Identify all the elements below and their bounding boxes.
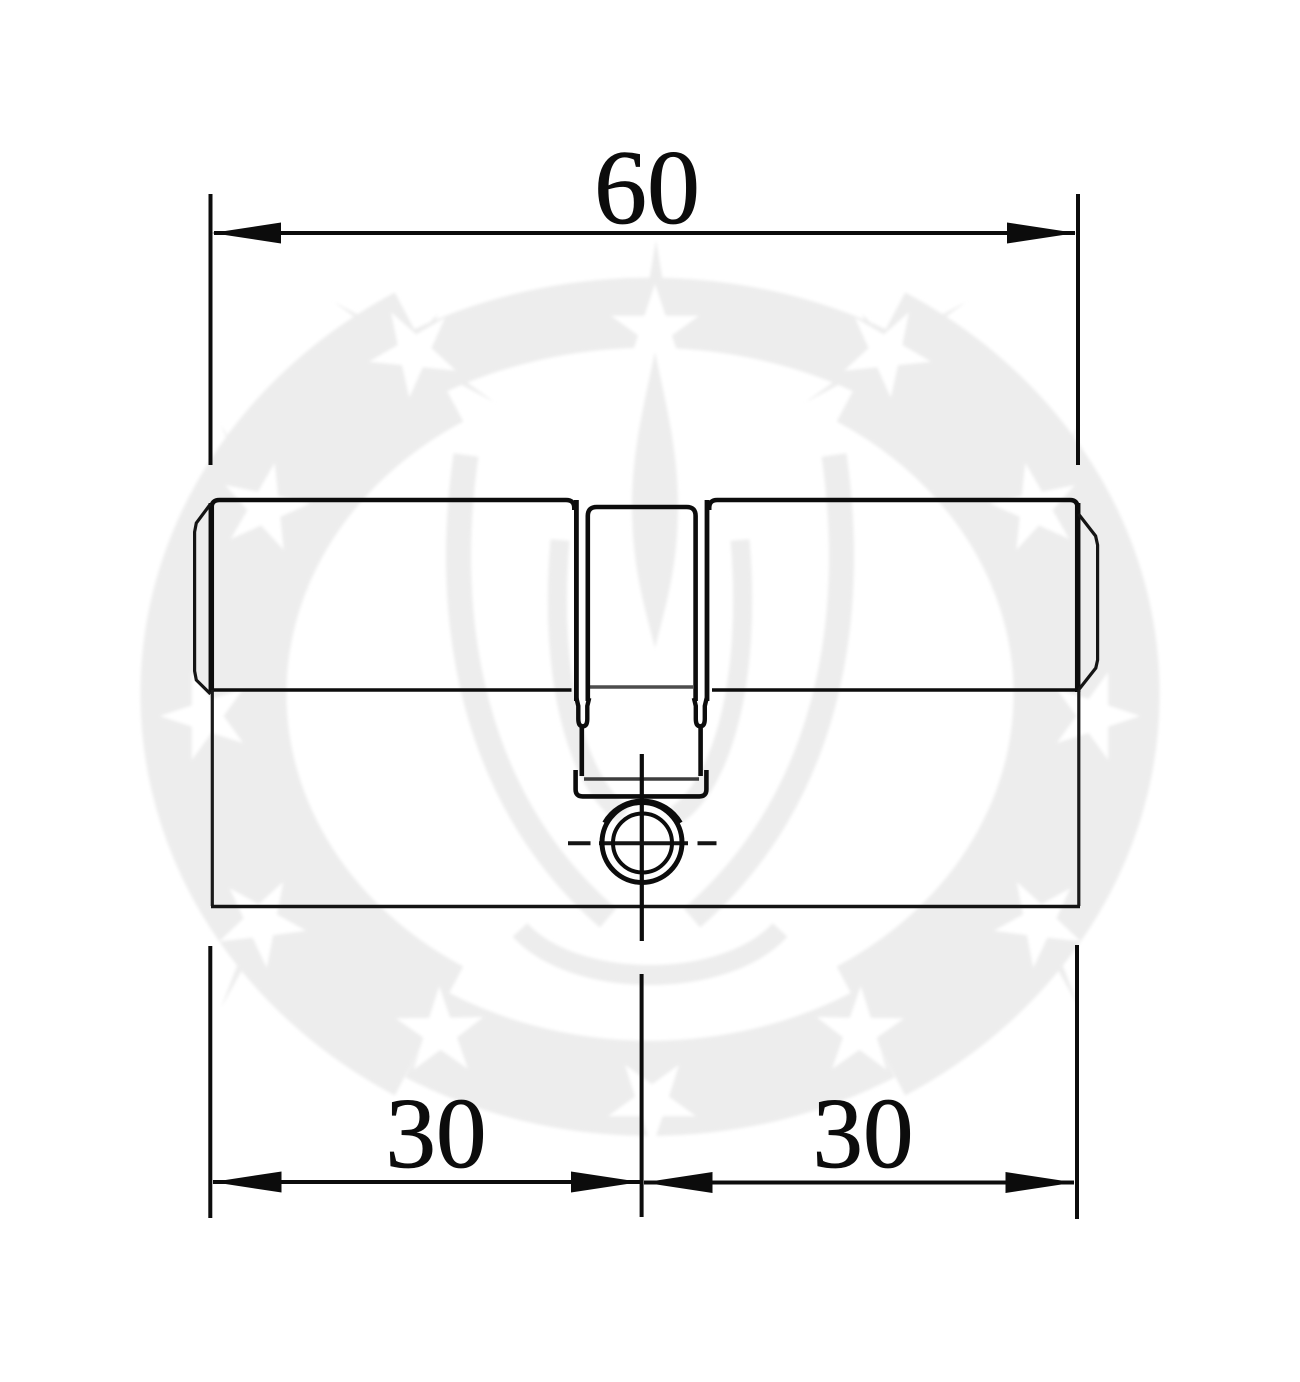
svg-text:30: 30 bbox=[813, 1077, 914, 1189]
svg-text:30: 30 bbox=[386, 1077, 487, 1189]
svg-text:60: 60 bbox=[594, 129, 700, 246]
